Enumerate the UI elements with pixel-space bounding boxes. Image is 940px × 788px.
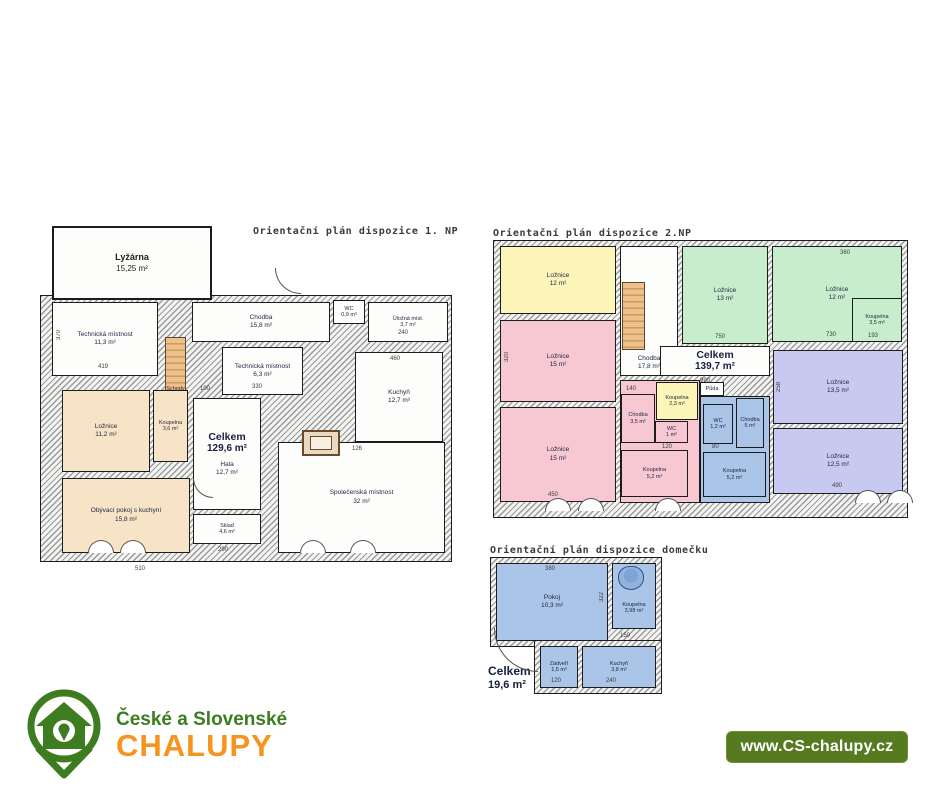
room-wc-pink: WC 1 m² [655,421,688,443]
dim-label: 490 [832,483,842,489]
logo-line1: České a Slovenské [116,710,287,730]
dim-label: 80 [712,444,719,450]
dim-label: 730 [826,332,836,338]
dim-label: 419 [98,364,108,370]
dim-label: 320 [504,352,510,362]
dim-label: 460 [390,356,400,362]
room-chodba-pink: Chodba 3,5 m² [621,394,655,443]
plan1-title: Orientační plán dispozice 1. NP [253,226,458,237]
dim-label: 380 [545,566,555,572]
dim-label: 240 [398,330,408,336]
room-koupelna-blue: Koupelna 5,2 m² [703,452,766,497]
dim-label: 100 [200,386,210,392]
room-loznice-pink-lower: Ložnice 15 m² [500,407,616,502]
dim-label: 290 [218,547,228,553]
dim-label: 360 [840,250,850,256]
dim-label: 510 [135,566,145,572]
room-wc-1np: WC 0,9 m² [333,300,365,324]
room-puda: Půda [700,382,724,396]
room-loznice-purple-1: Ložnice 13,5 m² [773,350,903,424]
room-sklad: Sklad 4,6 m² [193,514,261,544]
plan2-total: Celkem 139,7 m² [660,346,770,376]
logo-line2: CHALUPY [116,730,287,761]
screenshot-root: Orientační plán dispozice 1. NP Lyžárna … [0,0,940,788]
room-kuchyn-cottage: Kuchyň 3,8 m² [582,646,656,688]
room-loznice-yellow: Ložnice 12 m² [500,246,616,314]
logo-text: České a Slovenské CHALUPY [116,710,287,761]
dim-label: 750 [715,334,725,340]
dim-label: 120 [662,444,672,450]
door-swing [887,490,913,503]
room-lyzarna: Lyžárna 15,25 m² [52,226,212,300]
dim-label: 258 [776,382,782,392]
room-loznice-pink-upper: Ložnice 15 m² [500,320,616,402]
room-wc-blue: WC 1,2 m² [703,404,733,444]
room-spolecenska-mistnost: Společenská místnost 32 m² [278,442,445,553]
plan2-title: Orientační plán dispozice 2.NP [493,228,692,239]
dim-label: 450 [548,492,558,498]
website-badge[interactable]: www.CS-chalupy.cz [726,731,908,763]
shower-icon [618,566,644,590]
dim-label: 150 [620,633,630,639]
dim-label: 322 [599,592,605,602]
room-loznice-green-1: Ložnice 13 m² [682,246,768,344]
dim-label: 120 [551,678,561,684]
room-koupelna-pink: Koupelna 5,2 m² [621,450,688,497]
room-kuchyn-1np: Kuchyň 12,7 m² [355,352,443,442]
dim-label: 140 [626,386,636,392]
dim-label: 193 [868,333,878,339]
room-technicka-mistnost-2: Technická místnost 6,3 m² [222,347,303,395]
room-ulozna-mistnost: Úložná míst. 3,7 m² [368,302,448,342]
plan3-title: Orientační plán dispozice domečku [490,545,708,556]
dim-label: 990 [700,378,710,384]
room-koupelna-1np: Koupelna 3,6 m² [153,390,188,462]
room-chodba-blue: Chodba 5 m² [736,398,764,448]
dim-label: 126 [352,446,362,452]
room-chodba-1np: Chodba 15,8 m² [192,302,330,342]
room-loznice-1np: Ložnice 11,2 m² [62,390,150,472]
site-logo[interactable]: České a Slovenské CHALUPY [20,686,287,785]
dim-label: 370 [56,330,62,340]
dim-label: 330 [252,384,262,390]
fireplace-icon [302,430,340,456]
dim-label: 240 [606,678,616,684]
logo-pin-house-icon [20,686,108,785]
website-url: www.CS-chalupy.cz [741,738,894,756]
stairs-2np [622,282,645,350]
room-koupelna-yellow: Koupelna 2,3 m² [656,382,698,420]
door-arc [275,268,301,294]
